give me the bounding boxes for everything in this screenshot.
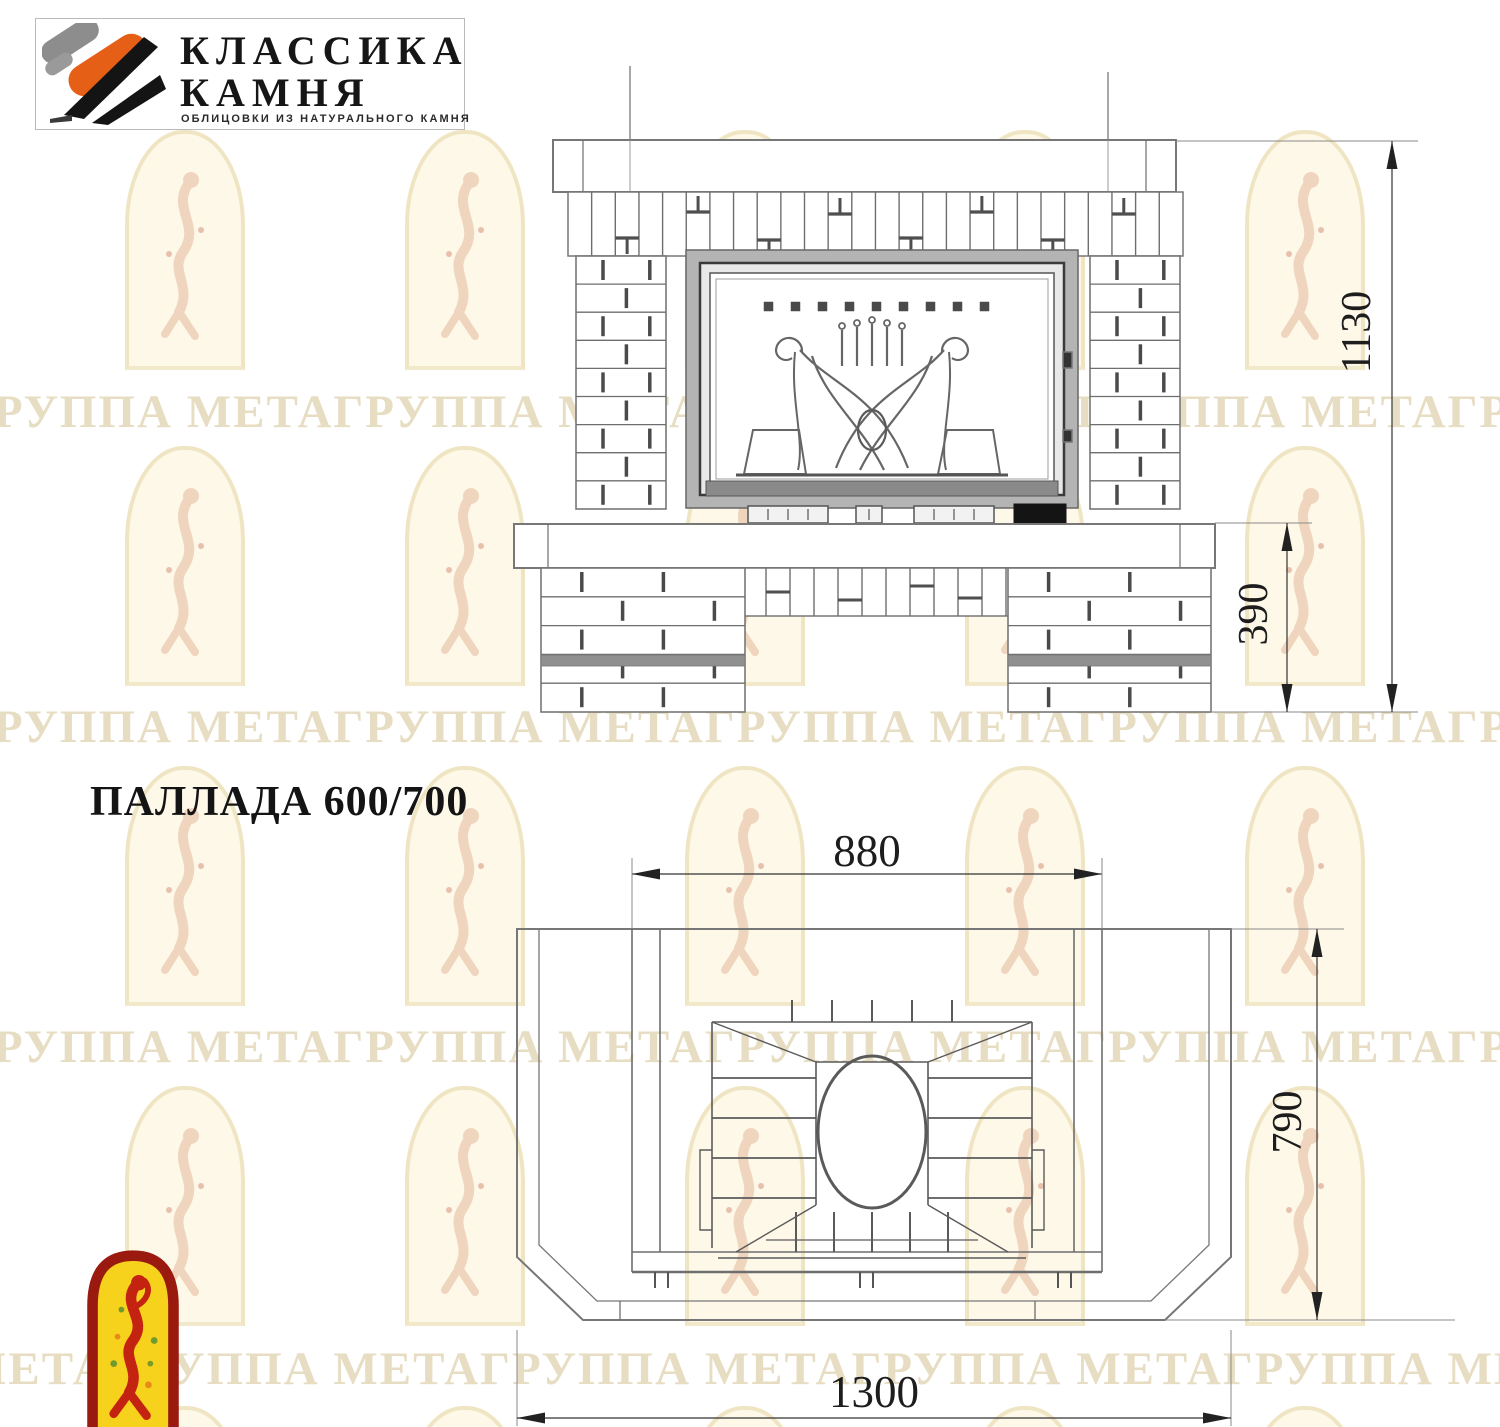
brand-name-line1: КЛАССИКА: [180, 27, 468, 74]
meta-flame-logo: [85, 1248, 181, 1427]
brand-logo-box: КЛАССИКА КАМНЯ ОБЛИЦОВКИ ИЗ НАТУРАЛЬНОГО…: [35, 18, 465, 130]
dim-label-total-height: 1130: [1333, 282, 1381, 382]
dim-label-opening-width: 880: [792, 825, 942, 877]
technical-drawing: [0, 0, 1500, 1427]
dim-label-base-height: 390: [1230, 564, 1278, 664]
brand-tagline: ОБЛИЦОВКИ ИЗ НАТУРАЛЬНОГО КАМНЯ: [181, 113, 471, 125]
page: ГРУППА МЕТАГРУППА МЕТАГРУППА МЕТАГРУППА …: [0, 0, 1500, 1427]
dim-label-total-width: 1300: [774, 1366, 974, 1418]
brush-strokes-logo-icon: [42, 23, 178, 127]
model-title: ПАЛЛАДА 600/700: [90, 778, 468, 826]
brand-name-line2: КАМНЯ: [180, 69, 371, 116]
dim-label-depth: 790: [1264, 1072, 1312, 1172]
